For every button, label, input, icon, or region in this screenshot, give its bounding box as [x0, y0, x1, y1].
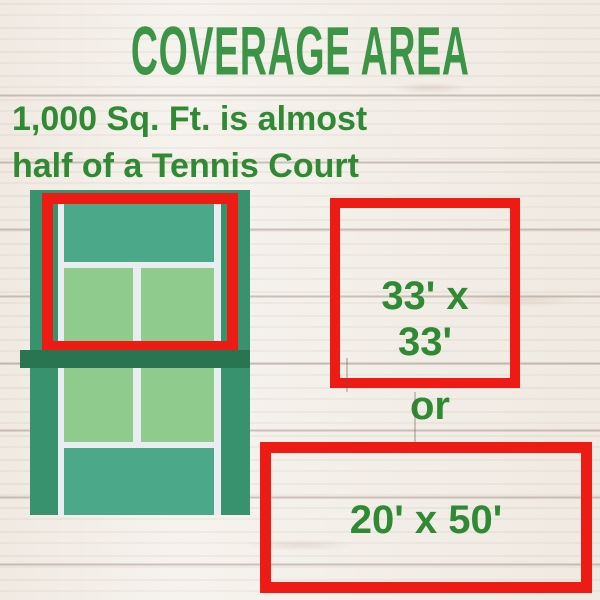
- page-title-text: COVERAGE AREA: [131, 2, 470, 102]
- wood-crack-decoration: [346, 358, 348, 392]
- infographic-canvas: COVERAGE AREA 1,000 Sq. Ft. is almost ha…: [0, 0, 600, 600]
- subtitle: 1,000 Sq. Ft. is almost half of a Tennis…: [12, 96, 572, 190]
- square-33x33-label: 33' x 33': [381, 273, 468, 365]
- court-backcourt-bottom: [64, 448, 214, 515]
- subtitle-line-1: 1,000 Sq. Ft. is almost: [12, 96, 572, 143]
- square-label-line-2: 33': [381, 319, 468, 365]
- court-half-highlight-outline: [42, 193, 238, 352]
- square-33x33-outline: 33' x 33': [330, 198, 520, 388]
- subtitle-line-2: half of a Tennis Court: [12, 143, 572, 190]
- connector-or-text: or: [375, 386, 485, 426]
- court-service-box-bottom-right: [141, 368, 214, 442]
- rectangle-20x50-label: 20' x 50': [350, 497, 502, 543]
- page-title: COVERAGE AREA: [0, 14, 600, 90]
- wood-crack-decoration: [414, 392, 416, 442]
- court-net-bar: [20, 350, 250, 368]
- square-label-line-1: 33' x: [381, 273, 468, 319]
- court-service-box-bottom-left: [64, 368, 133, 442]
- rectangle-20x50-outline: 20' x 50': [260, 442, 592, 593]
